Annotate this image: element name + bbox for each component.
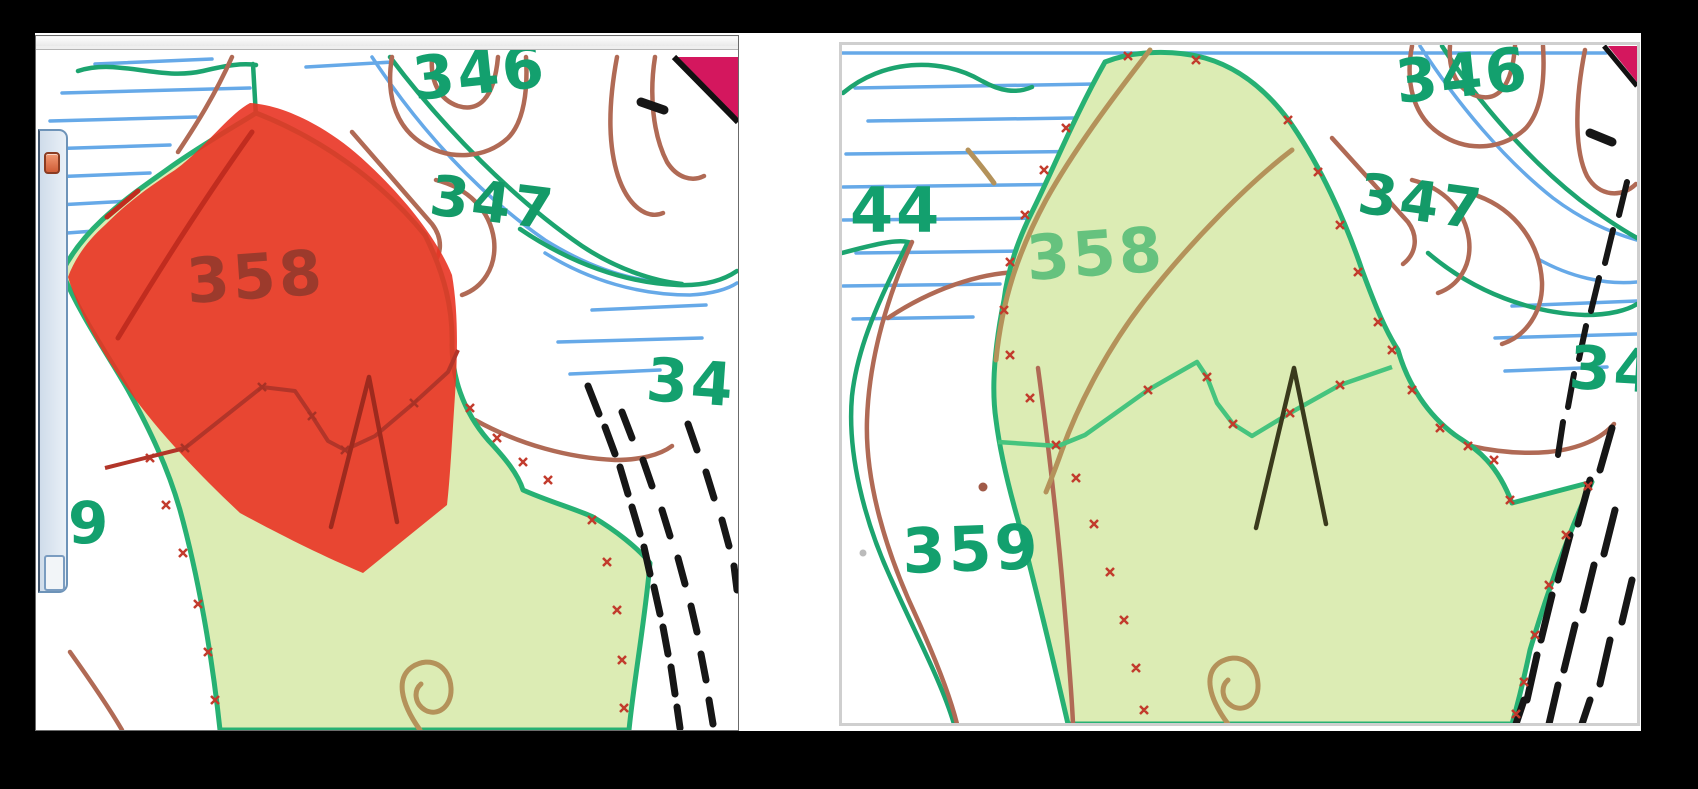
map-label-346: 346	[1392, 45, 1533, 118]
contour-dot	[979, 483, 988, 492]
dock-scroll-thumb[interactable]	[44, 555, 65, 591]
map-label-359: 359	[901, 510, 1042, 588]
map-label-347: 347	[426, 163, 559, 243]
right-map-svg: 44 346 347 358 359 34	[842, 45, 1637, 723]
dock-close-button[interactable]	[44, 152, 60, 174]
gray-dot	[860, 550, 867, 557]
magenta-road-corner	[1608, 46, 1637, 82]
left-window-top-bar	[36, 36, 738, 50]
map-label-358: 358	[1024, 212, 1167, 294]
map-label-359-partial: 9	[68, 489, 111, 557]
left-map-canvas[interactable]: 346 347 34 9 358	[36, 50, 738, 730]
map-label-358: 358	[184, 235, 327, 317]
map-label-349-partial: 34	[644, 345, 738, 421]
black-dash	[1590, 133, 1612, 142]
left-map-svg: 346 347 34 9 358	[36, 50, 738, 730]
left-dock-strip	[38, 129, 68, 593]
screenshot-canvas: 346 347 34 9 358	[0, 0, 1698, 789]
map-label-344-partial: 44	[850, 174, 942, 247]
map-label-347: 347	[1354, 161, 1488, 243]
map-label-346: 346	[409, 50, 550, 115]
right-map-canvas[interactable]: 44 346 347 358 359 34	[842, 45, 1637, 723]
map-label-349-partial: 34	[1567, 333, 1637, 408]
black-dash	[641, 102, 664, 110]
right-map-window: 44 346 347 358 359 34	[839, 42, 1640, 726]
left-map-window: 346 347 34 9 358	[35, 35, 739, 731]
